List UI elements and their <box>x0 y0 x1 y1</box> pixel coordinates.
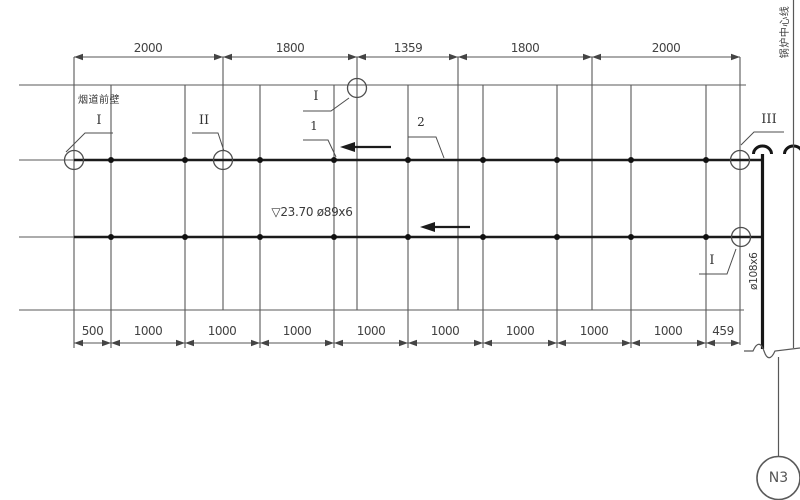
drawing-linework <box>0 0 800 500</box>
leader-detail-1 <box>303 140 336 157</box>
bottom-dimension-line <box>74 340 740 346</box>
bottom-dim-1: 500 <box>75 325 110 337</box>
boiler-centerline-note: 锅炉中心线 <box>781 4 791 60</box>
top-dim-5: 2000 <box>646 42 686 54</box>
leader-marker-left <box>66 133 113 152</box>
leader-marker-right-top <box>741 132 784 145</box>
section-marker-right-bottom: I <box>703 254 721 267</box>
bottom-dim-6: 1000 <box>427 325 463 337</box>
detail-label-2: 2 <box>412 116 430 128</box>
leader-detail-2 <box>408 137 444 158</box>
section-marker-second: II <box>194 114 214 127</box>
section-marker-right-top: III <box>754 113 784 126</box>
top-dim-2: 1800 <box>270 42 310 54</box>
elevation-pipe-note: ▽23.70 ø89x6 <box>252 206 372 218</box>
grid-verticals <box>74 57 740 348</box>
bottom-dim-3: 1000 <box>204 325 240 337</box>
bottom-dim-8: 1000 <box>576 325 612 337</box>
riser-cap-icon <box>754 146 772 154</box>
edge-cap-icon <box>785 146 800 154</box>
leader-marker-second <box>192 133 224 151</box>
bottom-dim-5: 1000 <box>353 325 389 337</box>
detail-label-1: 1 <box>305 120 323 132</box>
flow-arrow-lower <box>420 222 470 232</box>
bottom-dim-2: 1000 <box>130 325 166 337</box>
bottom-dim-4: 1000 <box>279 325 315 337</box>
chord-lines <box>19 85 746 310</box>
break-squiggle <box>744 344 800 358</box>
section-marker-top: I <box>307 90 325 103</box>
bottom-dim-9: 1000 <box>650 325 686 337</box>
top-dim-4: 1800 <box>505 42 545 54</box>
top-dim-1: 2000 <box>128 42 168 54</box>
riser-size-note: ø108x6 <box>749 226 760 316</box>
wall-note: 烟道前壁 <box>76 96 122 106</box>
bottom-dim-7: 1000 <box>502 325 538 337</box>
flow-arrow-upper <box>340 142 391 152</box>
pipe-run-lines <box>74 160 761 237</box>
engineering-drawing: 2000 1800 1359 1800 2000 500 1000 1000 1… <box>0 0 800 500</box>
bottom-dim-10: 459 <box>706 325 740 337</box>
nozzle-tag: N3 <box>763 471 794 485</box>
section-marker-left: I <box>90 114 108 127</box>
top-dim-3: 1359 <box>388 42 428 54</box>
